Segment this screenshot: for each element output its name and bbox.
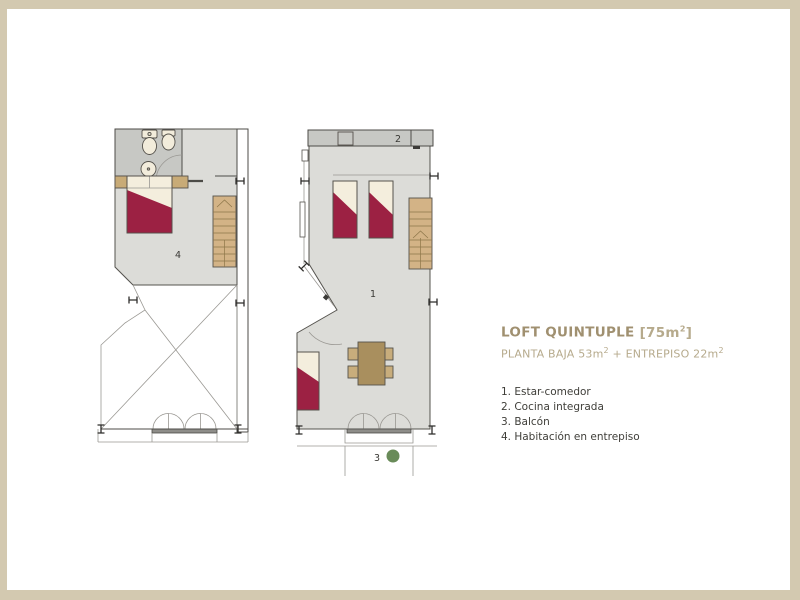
void-cross-lines xyxy=(101,285,237,429)
chair xyxy=(348,366,359,378)
page-subtitle: PLANTA BAJA 53m2 + ENTREPISO 22m2 xyxy=(501,346,751,361)
page-title: LOFT QUINTUPLE [75m2] xyxy=(501,321,751,341)
column-icon xyxy=(430,173,438,180)
room-legend: 1. Estar-comedor 2. Cocina integrada 3. … xyxy=(501,387,751,443)
room-label-living: 1 xyxy=(370,289,376,300)
dining-table xyxy=(358,342,385,385)
folding-doors-mezzanine xyxy=(152,413,217,433)
legend-item: 3. Balcón xyxy=(501,417,751,428)
staircase-mezzanine xyxy=(213,196,236,267)
room-label-kitchen: 2 xyxy=(395,134,401,145)
nightstand-right xyxy=(172,176,188,188)
single-bed-2 xyxy=(369,181,393,238)
kitchen-counter xyxy=(308,130,433,149)
single-bed-1 xyxy=(333,181,357,238)
nightstand-left xyxy=(115,176,127,188)
door-threshold xyxy=(347,429,411,433)
column-icon xyxy=(301,178,309,185)
title-area: [75m2] xyxy=(640,325,693,341)
floor-plans-drawing: 4 xyxy=(0,0,800,600)
room-label-balcony: 3 xyxy=(374,453,380,464)
single-bed-3 xyxy=(297,352,319,410)
groundfloor-plan: 2 1 3 xyxy=(296,130,439,476)
sink-icon xyxy=(141,162,156,177)
double-height-void xyxy=(101,285,237,429)
party-wall-strip xyxy=(237,129,248,432)
chair xyxy=(348,348,359,360)
plant-icon xyxy=(387,450,400,463)
column-icon xyxy=(129,297,137,304)
toilet-icon xyxy=(142,130,157,155)
title-block: LOFT QUINTUPLE [75m2] PLANTA BAJA 53m2 +… xyxy=(501,321,751,447)
balcony xyxy=(297,429,437,476)
window xyxy=(300,202,305,237)
door-threshold xyxy=(152,429,217,433)
staircase-groundfloor xyxy=(409,198,432,269)
legend-item: 2. Cocina integrada xyxy=(501,402,751,413)
bidet-icon xyxy=(162,130,175,150)
legend-item: 1. Estar-comedor xyxy=(501,387,751,398)
presentation-slide: { "colors": { "frame": "#d3c9b0", "floor… xyxy=(0,0,800,600)
door-jamb xyxy=(302,150,308,161)
kitchen-stub xyxy=(413,146,420,149)
legend-item: 4. Habitación en entrepiso xyxy=(501,432,751,443)
title-main: LOFT QUINTUPLE xyxy=(501,325,635,341)
mezzanine-plan: 4 xyxy=(98,129,249,442)
room-label-bedroom: 4 xyxy=(175,250,181,261)
